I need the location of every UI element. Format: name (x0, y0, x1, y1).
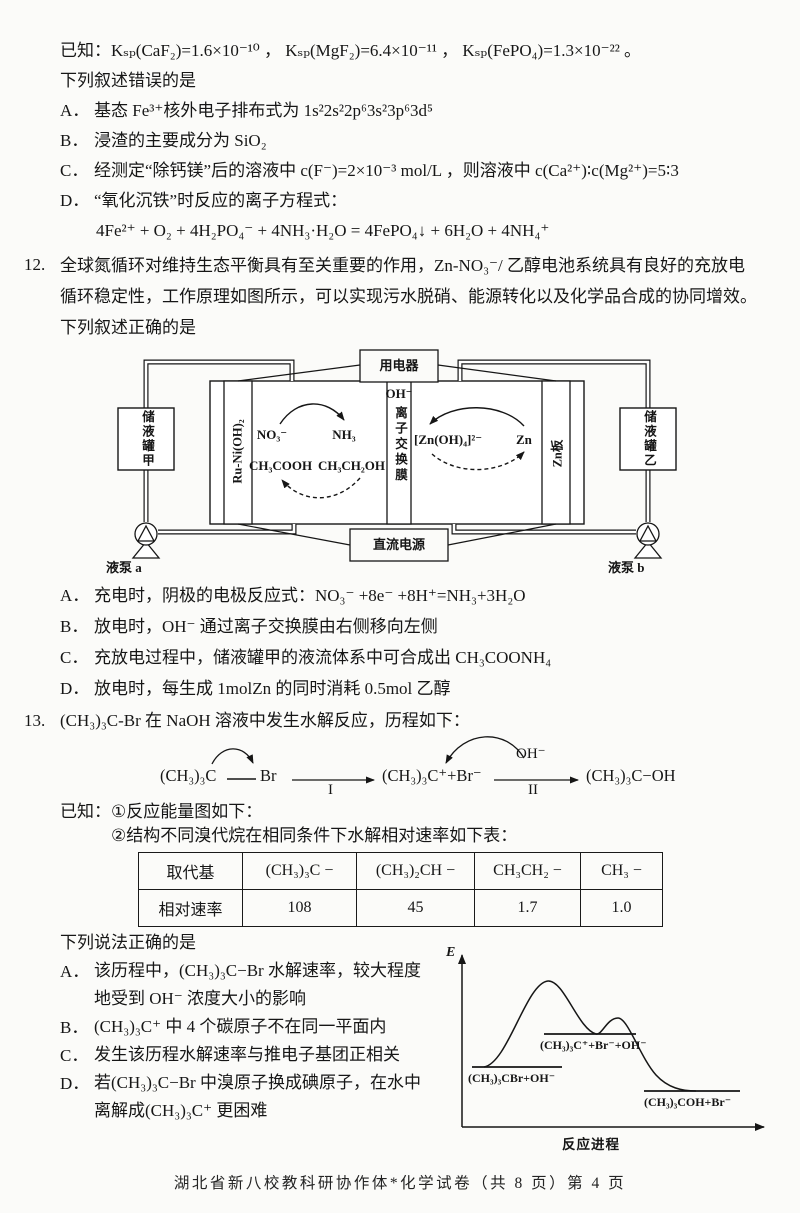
q11-option-d: D． “氧化沉铁”时反应的离子方程式： (60, 186, 764, 216)
q13-stem: (CH₃)₃C-Br 在 NaOH 溶液中发生水解反应，历程如下： (60, 706, 764, 736)
q13-number: 13. (24, 706, 45, 736)
table-value-3: 1.7 (475, 890, 581, 927)
scheme-reagent: OH⁻ (516, 744, 546, 763)
q12-option-c-text: 充放电过程中，储液罐甲的液流体系中可合成出 CH₃COONH₄ (94, 648, 551, 667)
table-header-methyl: CH₃ − (581, 853, 663, 890)
zn-label: Zn (516, 432, 532, 447)
table-header-isopropyl: (CH₃)₂CH − (357, 853, 475, 890)
q11-option-c: C． 经测定“除钙镁”后的溶液中 c(F⁻)=2×10⁻³ mol/L ，则溶液… (60, 156, 764, 186)
q11-option-b: B． 浸渣的主要成分为 SiO₂ (60, 126, 764, 156)
table-row-label: 相对速率 (139, 890, 243, 927)
q11-option-a: A． 基态 Fe³⁺核外电子排布式为 1s²2s²2p⁶3s²3p⁶3d⁵ (60, 96, 764, 126)
table-value-1: 108 (243, 890, 357, 927)
table-header-tbutyl: (CH₃)₃C − (243, 853, 357, 890)
q13-option-d-label: D． (60, 1069, 89, 1094)
energy-level-3-label: (CH₃)₃COH+Br⁻ (644, 1095, 731, 1110)
q12-option-d-label: D． (60, 673, 89, 704)
q11-stem: 下列叙述错误的是 (60, 66, 764, 96)
energy-diagram: E 反应进程 (CH₃)₃CBr+OH⁻ (CH₃)₃C⁺+Br⁻+OH⁻ (C… (444, 939, 778, 1153)
q11-option-d-equation: 4Fe²⁺ + O₂ + 4H₂PO₄⁻ + 4NH₃·H₂O = 4FePO₄… (60, 216, 764, 246)
q11-option-d-label: D． (60, 186, 89, 216)
q13-option-c-label: C． (60, 1041, 88, 1066)
page-footer: 湖北省新八校教科研协作体*化学试卷（共 8 页）第 4 页 (0, 1171, 800, 1193)
q13-option-a-line-1: 该历程中，(CH₃)₃C−Br 水解速率，较大程度 (94, 957, 480, 985)
scheme-reactant: (CH₃)₃C (160, 766, 216, 786)
tank-a-label: 储液罐甲 (138, 410, 157, 470)
q13-options-row: A． 该历程中，(CH₃)₃C−Br 水解速率，较大程度 地受到 OH⁻ 浓度大… (60, 957, 764, 1171)
scheme-step1-label: I (328, 782, 333, 799)
electrode-right-label: Zn板 (547, 389, 566, 519)
exam-paper-page: 已知：Kₛₚ(CaF₂)=1.6×10⁻¹⁰ ， Kₛₚ(MgF₂)=6.4×1… (0, 0, 800, 1213)
q13-option-d: D． 若(CH₃)₃C−Br 中溴原子换成碘原子，在水中 离解成(CH₃)₃C⁺… (60, 1069, 480, 1125)
load-label: 用电器 (360, 358, 438, 373)
q12-option-a-text: 充电时，阴极的电极反应式：NO₃⁻ +8e⁻ +8H⁺=NH₃+3H₂O (94, 586, 526, 605)
q12-option-b-label: B． (60, 611, 88, 642)
q11-option-a-label: A． (60, 96, 89, 126)
q11-known-line: 已知：Kₛₚ(CaF₂)=1.6×10⁻¹⁰ ， Kₛₚ(MgF₂)=6.4×1… (60, 36, 764, 66)
energy-level-1-label: (CH₃)₃CBr+OH⁻ (468, 1071, 555, 1086)
tank-b-label: 储液罐乙 (640, 410, 659, 470)
table-value-row: 相对速率 108 45 1.7 1.0 (139, 890, 663, 927)
no3-label: NO₃⁻ (250, 427, 294, 442)
nh3-label: NH₃ (324, 427, 364, 442)
table-header-row: 取代基 (CH₃)₃C − (CH₃)₂CH − CH₃CH₂ − CH₃ − (139, 853, 663, 890)
pump-a-label: 液泵 a (106, 560, 142, 575)
zincate-label: [Zn(OH)₄]²⁻ (414, 432, 482, 447)
hydrolysis-rate-table: 取代基 (CH₃)₃C − (CH₃)₂CH − CH₃CH₂ − CH₃ − … (138, 852, 663, 927)
q13-option-b: B． (CH₃)₃C⁺ 中 4 个碳原子不在同一平面内 (60, 1013, 480, 1041)
page-content: 已知：Kₛₚ(CaF₂)=1.6×10⁻¹⁰ ， Kₛₚ(MgF₂)=6.4×1… (0, 0, 800, 1171)
q13-option-c-line-1: 发生该历程水解速率与推电子基团正相关 (94, 1041, 480, 1069)
table-value-2: 45 (357, 890, 475, 927)
curly-arrow-bond (212, 749, 253, 764)
electrode-left-label: Ru-Ni(OH)₂ (231, 387, 246, 517)
etoh-label: CH₃CH₂OH (318, 458, 385, 473)
membrane-ion-label: OH⁻ (383, 386, 415, 401)
q12-stem-line-1: 全球氮循环对维持生态平衡具有至关重要的作用，Zn-NO₃⁻/ 乙醇电池系统具有良… (60, 250, 764, 281)
scheme-leaving-group: Br (260, 766, 277, 786)
scheme-product: (CH₃)₃C−OH (586, 766, 676, 786)
q11-option-b-label: B． (60, 126, 88, 156)
table-header-substituent: 取代基 (139, 853, 243, 890)
scheme-step2-label: II (528, 782, 538, 799)
question-11-block: 已知：Kₛₚ(CaF₂)=1.6×10⁻¹⁰ ， Kₛₚ(MgF₂)=6.4×1… (60, 36, 764, 246)
acoh-label: CH₃COOH (249, 458, 312, 473)
q11-option-d-text: “氧化沉铁”时反应的离子方程式： (94, 191, 347, 210)
dc-source-label: 直流电源 (350, 537, 448, 552)
q13-option-c: C． 发生该历程水解速率与推电子基团正相关 (60, 1041, 480, 1069)
q12-option-b-text: 放电时，OH⁻ 通过离子交换膜由右侧移向左侧 (94, 617, 438, 636)
q13-option-d-line-1: 若(CH₃)₃C−Br 中溴原子换成碘原子，在水中 (94, 1069, 480, 1097)
pump-a-icon (133, 523, 159, 558)
question-13-block: 13. (CH₃)₃C-Br 在 NaOH 溶液中发生水解反应，历程如下： (60, 706, 764, 1171)
q11-option-c-label: C． (60, 156, 88, 186)
q12-option-d-text: 放电时，每生成 1molZn 的同时消耗 0.5mol 乙醇 (94, 679, 451, 698)
energy-level-2-label: (CH₃)₃C⁺+Br⁻+OH⁻ (540, 1038, 647, 1053)
q12-option-a-label: A． (60, 580, 89, 611)
battery-diagram: 用电器 直流电源 储液罐甲 储液罐乙 Ru-Ni(OH)₂ Zn板 OH⁻ 离子… (92, 346, 717, 578)
energy-x-axis-label: 反应进程 (562, 1133, 620, 1153)
q13-option-d-line-2: 离解成(CH₃)₃C⁺ 更困难 (94, 1097, 480, 1125)
reaction-scheme: (CH₃)₃C Br I (CH₃)₃C⁺+Br⁻ OH⁻ II (CH₃)₃C… (160, 736, 800, 800)
q12-stem-line-3: 下列叙述正确的是 (60, 312, 764, 343)
q12-option-b: B． 放电时，OH⁻ 通过离子交换膜由右侧移向左侧 (60, 611, 764, 642)
q12-number: 12. (24, 250, 45, 280)
curly-arrow-oh (446, 737, 524, 763)
q13-option-b-line-1: (CH₃)₃C⁺ 中 4 个碳原子不在同一平面内 (94, 1013, 480, 1041)
q13-option-a: A． 该历程中，(CH₃)₃C−Br 水解速率，较大程度 地受到 OH⁻ 浓度大… (60, 957, 480, 1013)
question-12-block: 12. 全球氮循环对维持生态平衡具有至关重要的作用，Zn-NO₃⁻/ 乙醇电池系… (60, 250, 764, 704)
q13-option-b-label: B． (60, 1013, 88, 1038)
q12-option-d: D． 放电时，每生成 1molZn 的同时消耗 0.5mol 乙醇 (60, 673, 764, 704)
q12-option-c-label: C． (60, 642, 88, 673)
q12-stem-line-2: 循环稳定性，工作原理如图所示，可以实现污水脱硝、能源转化以及化学品合成的协同增效… (60, 281, 764, 312)
table-value-4: 1.0 (581, 890, 663, 927)
q12-option-c: C． 充放电过程中，储液罐甲的液流体系中可合成出 CH₃COONH₄ (60, 642, 764, 673)
q13-options: A． 该历程中，(CH₃)₃C−Br 水解速率，较大程度 地受到 OH⁻ 浓度大… (60, 957, 480, 1125)
q13-option-a-label: A． (60, 957, 89, 982)
membrane-label: 离子交换膜 (391, 406, 410, 522)
q11-option-b-text: 浸渣的主要成分为 SiO₂ (94, 131, 267, 150)
q11-option-c-text: 经测定“除钙镁”后的溶液中 c(F⁻)=2×10⁻³ mol/L ，则溶液中 c… (94, 161, 679, 180)
pump-b-label: 液泵 b (608, 560, 644, 575)
q13-option-a-line-2: 地受到 OH⁻ 浓度大小的影响 (94, 985, 480, 1013)
energy-y-axis-label: E (446, 945, 455, 961)
pump-b-icon (635, 523, 661, 558)
table-header-ethyl: CH₃CH₂ − (475, 853, 581, 890)
q11-option-a-text: 基态 Fe³⁺核外电子排布式为 1s²2s²2p⁶3s²3p⁶3d⁵ (94, 101, 433, 120)
scheme-intermediate: (CH₃)₃C⁺+Br⁻ (382, 766, 482, 786)
q12-option-a: A． 充电时，阴极的电极反应式：NO₃⁻ +8e⁻ +8H⁺=NH₃+3H₂O (60, 580, 764, 611)
q13-known-1: 已知：①反应能量图如下： (60, 800, 764, 824)
q13-known-2: ②结构不同溴代烷在相同条件下水解相对速率如下表： (60, 824, 764, 848)
